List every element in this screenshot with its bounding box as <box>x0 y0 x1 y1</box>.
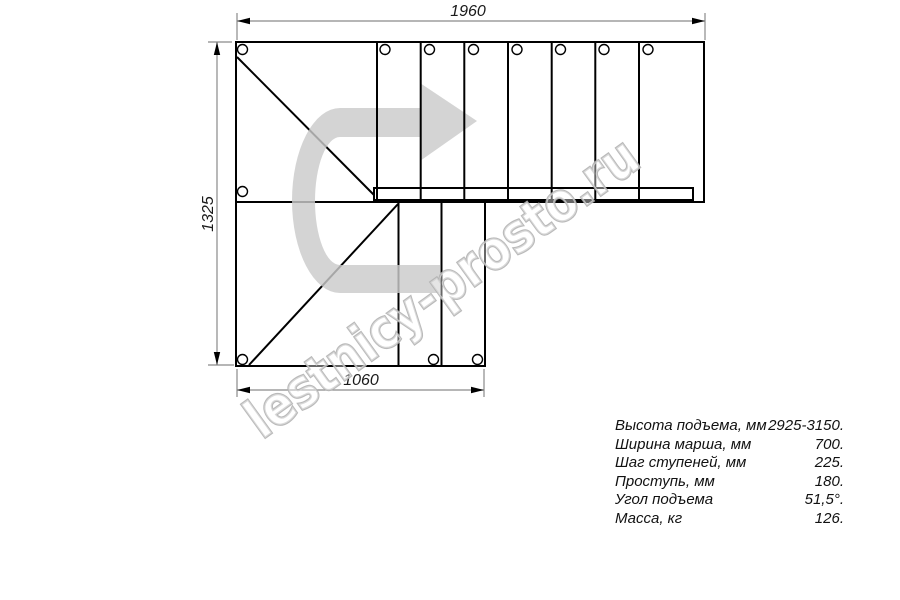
spec-row: Угол подъема 51,5°. <box>615 491 844 510</box>
specs-table: Высота подъема, мм 2925-3150. Ширина мар… <box>615 417 844 529</box>
spec-row: Высота подъема, мм 2925-3150. <box>615 417 844 436</box>
spec-label: Масса, кг <box>615 510 682 529</box>
dimension-arrowheads <box>214 18 705 393</box>
mount-hole <box>473 355 483 365</box>
mount-hole <box>512 45 522 55</box>
spec-row: Шаг ступеней, мм 225. <box>615 454 844 473</box>
mount-hole <box>238 187 248 197</box>
mount-hole <box>429 355 439 365</box>
dimension-extension-lines <box>208 13 705 397</box>
spec-value: 700. <box>815 436 844 455</box>
mount-hole <box>238 355 248 365</box>
mount-hole <box>643 45 653 55</box>
spec-label: Шаг ступеней, мм <box>615 454 746 473</box>
mount-hole <box>599 45 609 55</box>
spec-value: 180. <box>815 473 844 492</box>
spec-label: Угол подъема <box>615 491 713 510</box>
spec-label: Высота подъема, мм <box>615 417 767 436</box>
mount-hole <box>469 45 479 55</box>
dimension-top-label: 1960 <box>450 3 486 20</box>
spec-label: Проступь, мм <box>615 473 715 492</box>
dimension-left-label: 1325 <box>200 196 217 232</box>
spec-row: Проступь, мм 180. <box>615 473 844 492</box>
spec-value: 225. <box>815 454 844 473</box>
mount-hole <box>238 45 248 55</box>
mount-hole <box>425 45 435 55</box>
spec-value: 51,5°. <box>805 491 844 510</box>
spec-value: 126. <box>815 510 844 529</box>
mount-hole <box>556 45 566 55</box>
spec-value: 2925-3150. <box>768 417 844 436</box>
spec-row: Масса, кг 126. <box>615 510 844 529</box>
mount-hole <box>380 45 390 55</box>
spec-label: Ширина марша, мм <box>615 436 751 455</box>
spec-row: Ширина марша, мм 700. <box>615 436 844 455</box>
